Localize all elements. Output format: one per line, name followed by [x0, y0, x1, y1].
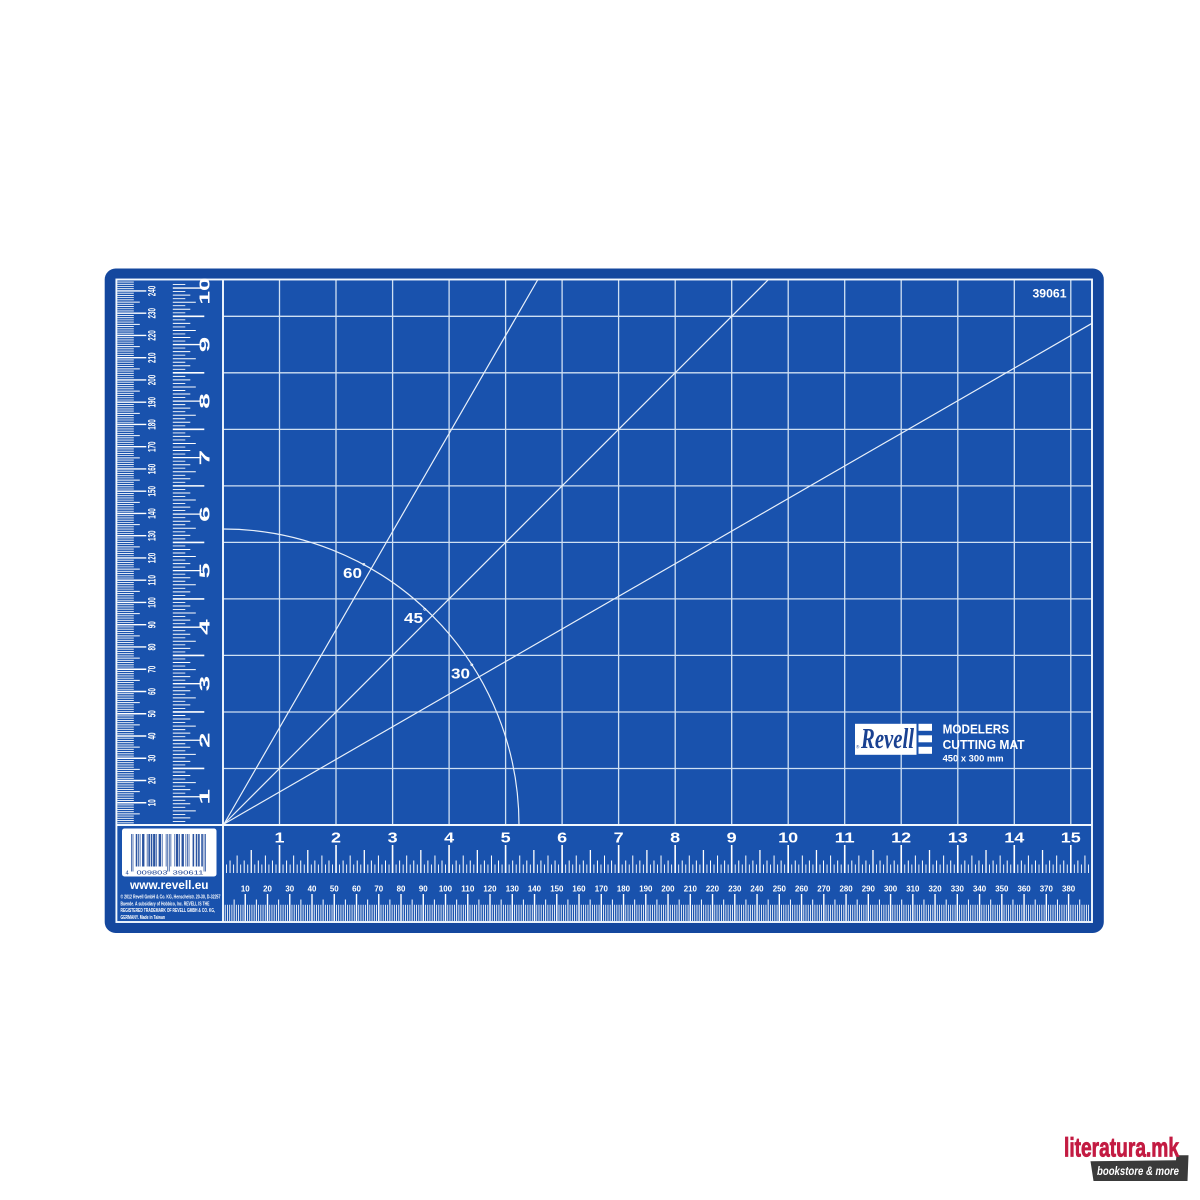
svg-text:180: 180 [617, 883, 631, 893]
svg-text:5: 5 [198, 563, 214, 579]
svg-text:140: 140 [146, 508, 158, 519]
svg-text:120: 120 [146, 553, 158, 564]
svg-text:20: 20 [263, 883, 272, 893]
svg-text:210: 210 [146, 352, 158, 363]
svg-text:40: 40 [146, 733, 158, 740]
svg-text:210: 210 [684, 883, 698, 893]
svg-text:130: 130 [506, 883, 520, 893]
svg-text:MODELERS: MODELERS [943, 723, 1010, 737]
svg-text:9: 9 [198, 337, 214, 353]
svg-text:60: 60 [146, 688, 158, 695]
svg-text:3: 3 [388, 830, 398, 847]
svg-text:GERMANY. Made in Taiwan: GERMANY. Made in Taiwan [121, 915, 166, 921]
svg-text:260: 260 [795, 883, 809, 893]
svg-text:2: 2 [331, 830, 341, 847]
svg-text:220: 220 [706, 883, 720, 893]
svg-text:14: 14 [1004, 830, 1025, 847]
svg-text:39061: 39061 [1033, 287, 1067, 301]
svg-text:3: 3 [198, 676, 214, 692]
svg-text:160: 160 [146, 464, 158, 475]
svg-text:15: 15 [1061, 830, 1081, 847]
svg-text:50: 50 [146, 710, 158, 717]
svg-text:REGISTERED TRADEMARK OF REVELL: REGISTERED TRADEMARK OF REVELL GMBH & CO… [121, 908, 216, 914]
svg-text:CUTTING MAT: CUTTING MAT [943, 738, 1025, 752]
svg-text:6: 6 [198, 506, 214, 522]
svg-text:320: 320 [929, 883, 943, 893]
svg-text:300: 300 [884, 883, 898, 893]
svg-text:20: 20 [146, 777, 158, 784]
svg-text:°: ° [470, 662, 474, 672]
svg-text:150: 150 [146, 486, 158, 497]
svg-text:www.revell.eu: www.revell.eu [129, 880, 209, 892]
svg-text:250: 250 [773, 883, 787, 893]
svg-text:70: 70 [146, 666, 158, 673]
svg-text:110: 110 [146, 575, 158, 586]
svg-text:45: 45 [404, 611, 423, 627]
svg-text:450 x 300 mm: 450 x 300 mm [943, 754, 1004, 765]
svg-text:10: 10 [241, 883, 250, 893]
svg-text:140: 140 [528, 883, 542, 893]
svg-text:10: 10 [778, 830, 798, 847]
svg-text:170: 170 [146, 441, 158, 452]
svg-text:009803: 009803 [137, 871, 168, 877]
svg-text:12: 12 [891, 830, 911, 847]
svg-text:literatura.mk: literatura.mk [1064, 1133, 1179, 1163]
svg-text:10: 10 [146, 799, 158, 806]
svg-text:Buende. A subsidiary of Hobbic: Buende. A subsidiary of Hobbico, Inc. RE… [121, 901, 210, 907]
svg-text:240: 240 [146, 286, 158, 297]
svg-text:380: 380 [1062, 883, 1076, 893]
svg-text:5: 5 [501, 830, 511, 847]
svg-text:50: 50 [330, 883, 339, 893]
svg-text:150: 150 [550, 883, 564, 893]
svg-text:11: 11 [835, 830, 855, 847]
svg-text:350: 350 [995, 883, 1009, 893]
svg-text:13: 13 [948, 830, 968, 847]
svg-text:30: 30 [146, 755, 158, 762]
svg-text:1: 1 [275, 830, 285, 847]
svg-text:bookstore & more: bookstore & more [1097, 1166, 1179, 1178]
svg-text:80: 80 [146, 644, 158, 651]
svg-text:100: 100 [146, 597, 158, 608]
svg-text:°: ° [423, 606, 427, 616]
svg-text:290: 290 [862, 883, 876, 893]
svg-text:230: 230 [146, 308, 158, 319]
svg-text:280: 280 [840, 883, 854, 893]
svg-text:310: 310 [906, 883, 920, 893]
svg-text:200: 200 [661, 883, 675, 893]
svg-text:9: 9 [727, 830, 737, 847]
svg-text:2: 2 [198, 732, 214, 748]
svg-text:7: 7 [198, 450, 214, 466]
svg-text:230: 230 [728, 883, 742, 893]
svg-text:330: 330 [951, 883, 965, 893]
svg-text:1: 1 [198, 789, 214, 805]
svg-text:40: 40 [308, 883, 317, 893]
svg-text:°: ° [362, 561, 366, 571]
svg-text:100: 100 [439, 883, 453, 893]
svg-text:8: 8 [198, 393, 214, 409]
svg-text:70: 70 [374, 883, 383, 893]
svg-text:340: 340 [973, 883, 987, 893]
svg-text:8: 8 [670, 830, 680, 847]
svg-text:© 2012 Revell GmbH & Co. KG, H: © 2012 Revell GmbH & Co. KG, Henschelstr… [121, 894, 221, 901]
svg-text:370: 370 [1040, 883, 1054, 893]
svg-text:4: 4 [198, 619, 214, 635]
svg-text:220: 220 [146, 330, 158, 341]
svg-text:390611: 390611 [173, 871, 204, 877]
svg-text:110: 110 [461, 883, 475, 893]
svg-text:180: 180 [146, 419, 158, 430]
svg-text:120: 120 [483, 883, 497, 893]
svg-text:170: 170 [595, 883, 609, 893]
svg-text:30: 30 [451, 667, 470, 683]
svg-text:270: 270 [817, 883, 831, 893]
svg-text:Revell: Revell [860, 724, 914, 755]
svg-text:7: 7 [614, 830, 624, 847]
svg-text:240: 240 [750, 883, 764, 893]
svg-text:10: 10 [198, 278, 214, 305]
svg-text:130: 130 [146, 530, 158, 541]
svg-text:360: 360 [1018, 883, 1032, 893]
svg-text:190: 190 [146, 397, 158, 408]
svg-text:90: 90 [419, 883, 428, 893]
svg-text:90: 90 [146, 621, 158, 628]
svg-text:30: 30 [285, 883, 294, 893]
svg-text:60: 60 [352, 883, 361, 893]
svg-text:200: 200 [146, 375, 158, 386]
svg-text:6: 6 [557, 830, 567, 847]
svg-text:4: 4 [444, 830, 455, 847]
svg-text:60: 60 [343, 566, 362, 582]
svg-text:80: 80 [397, 883, 406, 893]
svg-text:160: 160 [572, 883, 586, 893]
svg-text:190: 190 [639, 883, 653, 893]
